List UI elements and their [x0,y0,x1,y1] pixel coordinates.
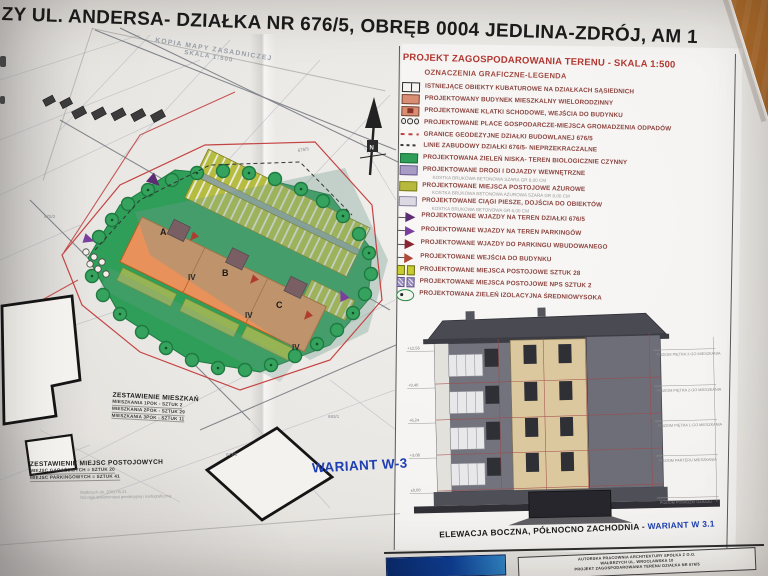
plot-boundary-swatch [401,133,419,136]
survey-stamp: Wałbrzych dn. 2001-05-21 Ośrodek dokumen… [80,488,172,500]
storey-label-1: IV [188,273,196,282]
disabled-parking-swatch [396,277,414,287]
parcel-label: 675/2 [44,214,56,219]
section-label-b: B [222,268,229,278]
garage-door [529,490,612,518]
existing-buildings-swatch [402,82,420,92]
facade-middle [510,339,589,491]
section-label-a: A [160,227,167,237]
stairwell-swatch [401,106,419,116]
parking-stalls-swatch [397,265,415,275]
storey-label-2: IV [245,311,253,320]
parcel-label: 693/1 [328,414,340,419]
garage-entry-arrow-swatch [397,238,415,250]
building-entrance-arrow-swatch [397,252,415,264]
low-greenery-swatch [400,153,418,163]
level-label: POZIOM PIĘTRA 3-GO MIESZKANIA [657,352,721,357]
level-dim: +9,40 [408,382,419,387]
storey-label-3: IV [292,343,300,352]
internal-roads-swatch [400,165,418,175]
legend-label: PROJEKTOWANE WEJŚCIA DO BUDYNKU [420,252,551,264]
legend-panel: PROJEKT ZAGOSPODAROWANIA TERENU - SKALA … [396,52,737,311]
parcel-label: 676/5 [297,146,309,153]
apartments-table: ZESTAWIENIE MIESZKAŃ MIESZKANIA 1POK - S… [111,392,199,424]
level-dim: +12,56 [407,345,420,350]
parking-table: ZESTAWIENIE MIEJSC POSTOJOWYCH MIEJSC GA… [30,459,164,482]
elevation-drawing: +12,56 +9,40 +6,24 +3,08 ±0,00 [400,295,740,545]
paper-sheet: ZY UL. ANDERSA- DZIAŁKA NR 676/5, OBRĘB … [0,0,768,576]
parcel-label: 677/3 [226,452,238,457]
map-sheet-bottom-edge [0,512,400,545]
level-label: POZIOM PARTERU MIESZKANIA [659,458,717,463]
chimney [466,311,475,320]
level-label: POZIOM PIĘTRA 2-GO MIESZKANIA [657,388,721,393]
chimney [537,308,545,317]
existing-buildings-row [43,53,166,164]
level-dim: +3,08 [410,452,421,457]
level-dim: +6,24 [409,417,420,422]
photo-scene: ZY UL. ANDERSA- DZIAŁKA NR 676/5, OBRĘB … [0,0,768,576]
plot-entry-arrow-swatch [398,211,416,223]
title-block-logo-bar [386,554,507,576]
parking-entry-arrow-swatch [398,225,416,237]
section-label-c: C [276,300,283,310]
openwork-parking-swatch [399,181,417,191]
pedestrian-paths-swatch [399,196,417,206]
level-dim: ±0,00 [410,487,421,492]
building-line-swatch [400,144,418,146]
north-arrow: N [360,97,386,175]
north-label: N [370,146,374,152]
level-label: POZIOM PIĘTRA 1-GO MIESZKANIA [658,423,722,428]
residential-building-swatch [402,94,420,104]
waste-place-swatch [401,118,419,128]
